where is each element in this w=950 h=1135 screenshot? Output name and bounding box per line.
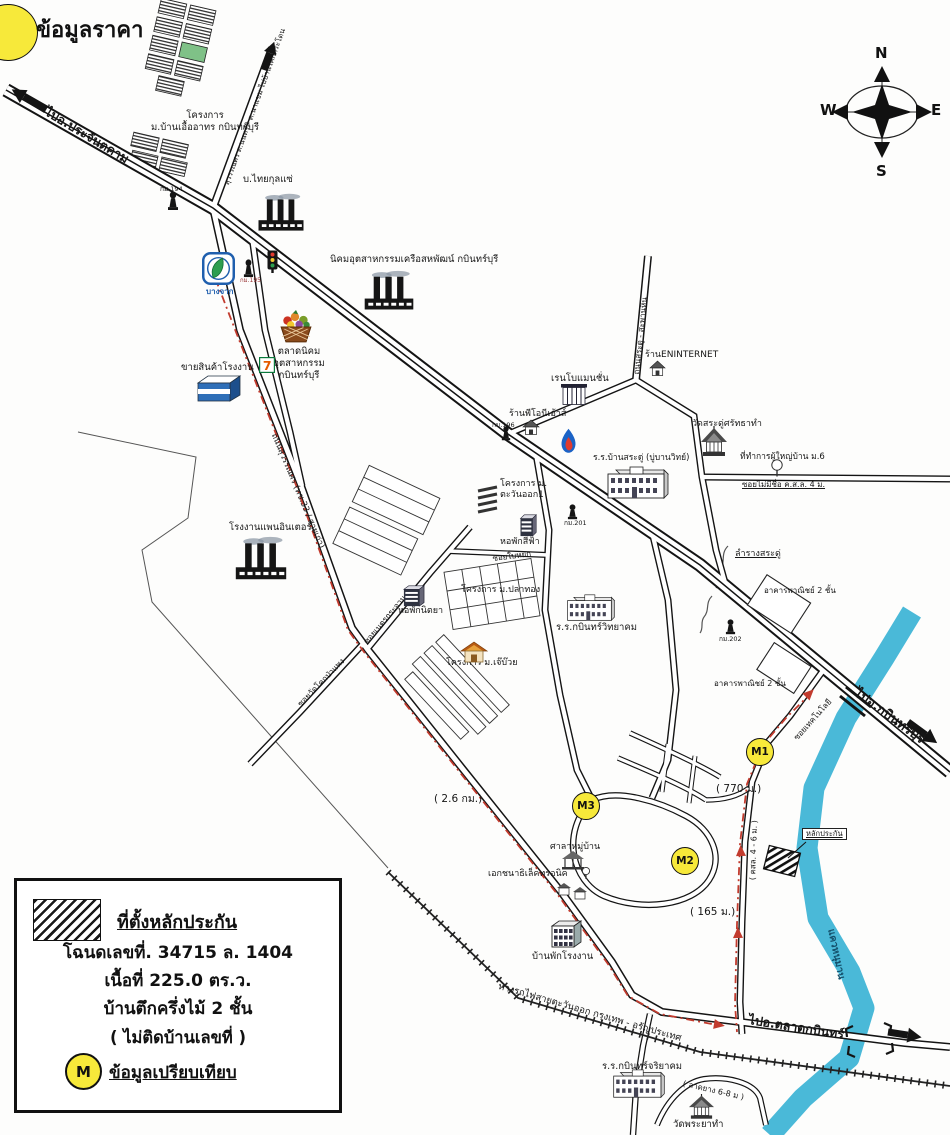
legend-deed-line: โฉนดเลขที่. 34715 ล. 1404 (17, 939, 339, 966)
compass-north-label: N (875, 44, 888, 62)
plathong-grid (444, 558, 540, 629)
legend-area-line: เนื้อที่ 225.0 ตร.ว. (17, 967, 339, 994)
legend-box: ที่ตั้งหลักประกัน โฉนดเลขที่. 34715 ล. 1… (14, 878, 342, 1113)
legend-note-line: ( ไม่ติดบ้านเลขที่ ) (17, 1025, 339, 1051)
legend-marker-circle: M (65, 1053, 102, 1090)
area-boundary-line (78, 432, 388, 868)
page-title: ข้อมูลราคา (36, 12, 143, 47)
legend-site-title: ที่ตั้งหลักประกัน (117, 907, 237, 936)
compass-east-label: E (931, 101, 941, 119)
map-canvas: ไปอ.ประจันตคามโครงการ ม.บ้านเอื้ออาทร กบ… (0, 0, 950, 1135)
commercial-building-1 (747, 575, 810, 634)
compass-graphic (818, 44, 946, 180)
compass-south-label: S (876, 162, 887, 180)
compass-rose: N S W E (818, 44, 946, 180)
compass-west-label: W (820, 101, 837, 119)
subdivision-lots (333, 465, 440, 576)
legend-marker-label: ข้อมูลเปรียบเทียบ (109, 1059, 237, 1086)
legend-building-line: บ้านตึกครึ่งไม้ 2 ชั้น (17, 995, 339, 1022)
tawanok-stripes (478, 487, 497, 512)
collateral-site-hatch (764, 845, 801, 876)
jebuay-strips (401, 635, 510, 745)
legend-site-swatch (33, 899, 101, 941)
